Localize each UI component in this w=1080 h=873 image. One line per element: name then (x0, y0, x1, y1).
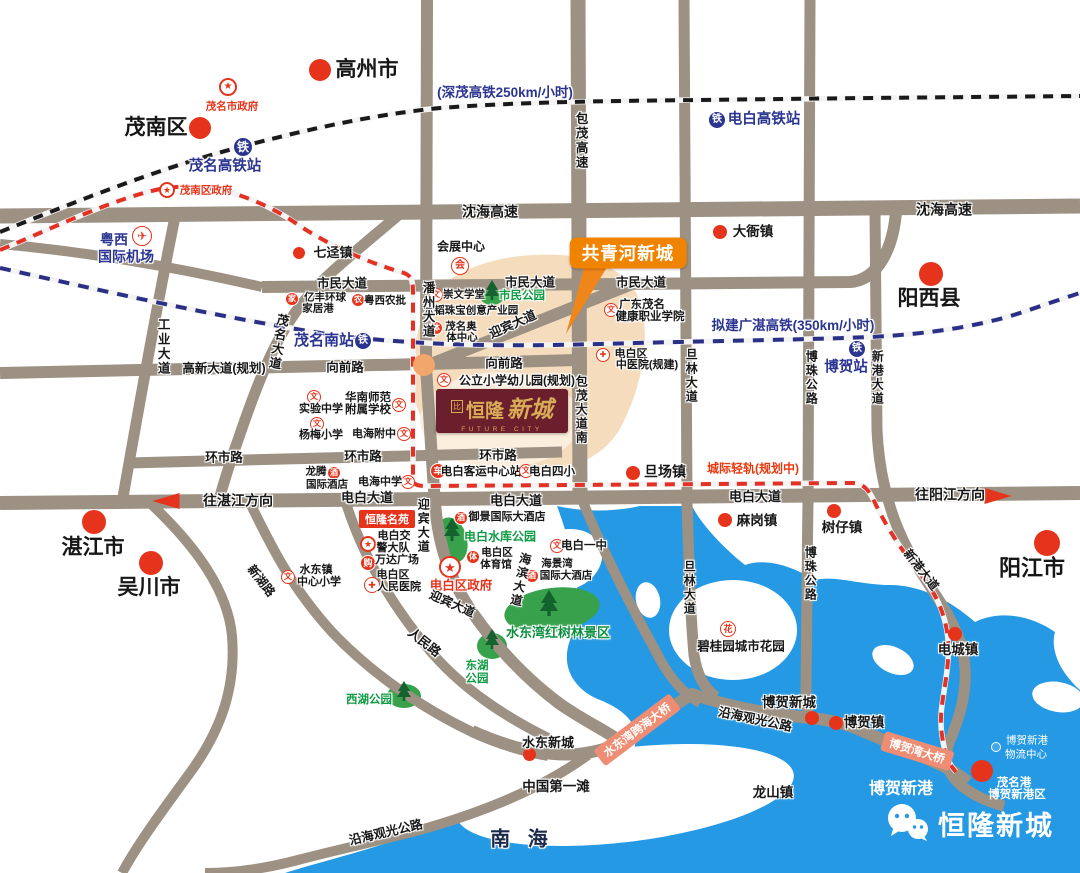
road-xinhu-rd-label: 新湖路 (245, 563, 277, 599)
city-wuchuan-label: 吴川市 (118, 577, 181, 599)
arrow-to-yangjiang-arrow (985, 488, 1012, 504)
town-longshan-label: 龙山镇 (753, 786, 794, 800)
road-dianbai-ave-1-label: 电白大道 (341, 491, 393, 505)
town-bohe-newtown-label: 博贺新城 (762, 696, 816, 710)
road-shimin-ave-2-label: 市民大道 (505, 276, 555, 289)
poi-tcm-hospital-line1: 中医院(规建) (616, 360, 678, 372)
park-mangrove-label: 水东湾红树林景区 (506, 626, 610, 640)
poi-biguiyuan-label: 碧桂园城市花园 (697, 640, 785, 653)
poi-dianbai-hsr-label: 电白高铁站 (728, 112, 801, 127)
road-baomao-ave-s-label: 包茂大道南 (575, 375, 588, 445)
poi-dianhai-fuzhong-label: 电海附中 (352, 429, 396, 441)
road-xingang-ave-n-label: 新港大道 (871, 350, 884, 406)
poi-wanda-plaza-icon: 购 (360, 555, 376, 571)
poi-biguiyuan-icon: 花 (720, 621, 736, 637)
arrow-to-yangjiang-label: 往阳江方向 (915, 488, 985, 503)
poi-yifeng-home-line1: 家居港 (302, 303, 334, 314)
road-dianbai-ave-2-label: 电白大道 (490, 494, 542, 508)
poi-bohe-station-icon: 铁 (848, 340, 866, 358)
road-panzhou-ave-label: 潘州大道 (420, 281, 433, 339)
poi-airport-line0: 粤西 (100, 233, 128, 248)
poi-health-college-line0: 广东茂名 (619, 299, 665, 311)
road-dianbai-ave-3-label: 电白大道 (729, 490, 781, 504)
poi-airport-line1: 国际机场 (98, 250, 154, 265)
town-qijing-dot (293, 247, 305, 259)
poi-maoming-hsr-label: 茂名高铁站 (189, 159, 262, 174)
rail-shenmao-label-label: (深茂高铁250km/小时) (437, 86, 573, 100)
poi-aoti-center-line1: 体中心 (446, 332, 478, 343)
road-xiangqian-rd-e-label: 向前路 (485, 357, 523, 370)
water-maoming-port-dot (971, 760, 993, 782)
road-shimin-ave-1-label: 市民大道 (317, 277, 367, 290)
poi-hengleng-mingyuan: 恒隆名苑 (359, 510, 415, 528)
city-zhanjiang-dot (82, 510, 106, 534)
town-bohe-newtown-dot (805, 711, 819, 725)
poi-shiyan-school-label: 实验中学 (299, 404, 343, 416)
poi-longteng-hotel-line1: 国际酒店 (306, 479, 348, 490)
label-nanhai-label: 南 海 (490, 830, 554, 851)
town-danchang-label: 旦场镇 (644, 465, 686, 480)
road-bozhu-hwy-s-label: 博珠公路 (804, 546, 817, 602)
poi-shuidong-school-line0: 水东镇 (300, 565, 333, 577)
water-maoming-port-line0: 茂名港 (997, 777, 1032, 789)
town-danchang-dot (626, 466, 640, 480)
road-maoming-ave-label: 茂名大道 (266, 312, 289, 371)
town-diancheng-label: 电城镇 (938, 643, 979, 657)
road-gaoxin-ave-label: 高新大道(规划) (182, 362, 265, 375)
town-bohe-dot (829, 716, 843, 730)
poi-dianhai-fuzhong-icon: 文 (397, 427, 411, 441)
park-reservoir-label: 电白水库公园 (464, 531, 536, 544)
town-shuidong-newtown-label: 水东新城 (522, 736, 574, 750)
town-qijing-label: 七迳镇 (313, 246, 352, 260)
poi-maoming-hsr-icon: 铁 (233, 137, 253, 157)
poi-chongwen-school-label: 崇文学堂 (443, 289, 485, 300)
poi-bus-station-label: 电白客运中心站 (441, 466, 522, 478)
town-shuzai-dot (827, 504, 841, 518)
poi-yuexi-market-label: 粤西农批 (364, 295, 406, 306)
map-annotations: 高州市茂南区阳西县湛江市吴川市阳江市七迳镇大衙镇旦场镇麻岗镇树仔镇电城镇博贺新城… (0, 0, 1080, 873)
bridge-shuidongwan: 水东湾跨海大桥 (593, 694, 681, 767)
poi-shuidong-school-line1: 中心小学 (297, 577, 341, 589)
logo-english-name: FUTURE CITY (461, 426, 542, 433)
road-yingbin-ave-s-label: 迎宾大道 (428, 588, 477, 619)
poi-dianbai-gov-icon: ★ (439, 556, 461, 578)
road-shimin-ave-3-label: 市民大道 (616, 276, 666, 289)
park-donghu-line0: 东湖 (466, 660, 489, 672)
park-donghu-line1: 公园 (466, 673, 489, 685)
road-shenhai-expwy-e-label: 沈海高速 (916, 203, 972, 218)
rail-guangzhan-label-label: 拟建广湛高铁(350km/小时) (712, 319, 875, 333)
water-bohe-newport-label: 博贺新港 (869, 782, 933, 799)
road-baomao-expwy-label: 包茂高速 (573, 112, 586, 170)
arrow-to-zhanjiang-arrow (153, 493, 180, 509)
poi-public-kindergarten-label: 公立小学幼儿园(规划) (459, 375, 575, 388)
poi-traffic-police-icon: ★ (360, 536, 376, 552)
city-wuchuan-dot (139, 551, 163, 575)
poi-dianbai-1st-school-label: 电白一中 (561, 540, 607, 552)
poi-shiyan-school-icon: 文 (307, 390, 321, 404)
poi-huanan-school-line0: 华南师范 (345, 392, 391, 404)
town-magang-dot (718, 513, 732, 527)
road-danlin-ave-n-label: 旦林大道 (685, 348, 698, 404)
road-xingang-ave-s-label: 新港大道 (901, 547, 940, 593)
poi-huanan-school-icon: 文 (392, 398, 406, 412)
arrow-to-zhanjiang-label: 往湛江方向 (203, 494, 273, 509)
poi-yujing-hotel-label: 御景国际大酒店 (469, 512, 546, 524)
poi-shuidong-school-icon: 文 (281, 570, 295, 584)
poi-gym-icon: 体 (466, 550, 480, 564)
wechat-account-name: 恒隆新城 (938, 804, 1054, 843)
poi-tcm-hospital-icon: ✚ (596, 348, 610, 362)
poi-people-hospital-line1: 人民医院 (377, 582, 421, 594)
wechat-icon (884, 803, 930, 843)
town-daya-label: 大衙镇 (733, 225, 774, 239)
bridge-bohewan: 博贺湾大桥 (880, 731, 954, 771)
town-daya-dot (713, 225, 727, 239)
city-maonan-label: 茂南区 (125, 117, 188, 139)
water-logistics-center-line1: 物流中心 (1005, 749, 1047, 760)
road-huanshi-rd-1-label: 环市路 (205, 451, 243, 464)
poi-maonan-gov-icon: ★ (159, 182, 175, 198)
water-logistics-center-line0: 博贺新港 (1006, 735, 1048, 746)
road-huanshi-rd-3-label: 环市路 (479, 449, 517, 462)
town-shuzai-label: 树仔镇 (822, 521, 863, 535)
road-danlin-ave-s-label: 旦林大道 (683, 560, 696, 616)
city-zhanjiang-label: 湛江市 (62, 537, 125, 559)
poi-dianhai-school-label: 电海中学 (358, 477, 402, 489)
poi-public-kindergarten-icon: 文 (437, 373, 451, 387)
project-logo-row: 比 恒隆 新城 (451, 390, 553, 424)
poi-maoming-gov-icon: ★ (219, 78, 237, 96)
city-maonan-dot (189, 117, 211, 139)
callout-gongqinghe-newtown: 共青河新城 (570, 238, 687, 269)
poi-dianbai-4th-school-label: 电白四小 (529, 466, 575, 478)
poi-longteng-hotel-line0: 龙腾 (306, 466, 327, 477)
water-maoming-port-line1: 博贺新港区 (988, 789, 1046, 801)
city-yangjiang-label: 阳江市 (999, 556, 1065, 579)
town-magang-label: 麻岗镇 (737, 514, 778, 528)
poi-gym-line0: 电白区 (481, 547, 513, 558)
park-shimin-label: 市民公园 (499, 290, 545, 302)
label-first-beach-label: 中国第一滩 (522, 780, 590, 794)
poi-traffic-police-line1: 警大队 (377, 543, 410, 555)
town-bohe-label: 博贺镇 (844, 716, 885, 730)
poi-bohe-station-label: 博贺站 (824, 360, 868, 375)
road-gongye-ave-label: 工业大道 (155, 318, 168, 376)
poi-maoming-south-station-icon: 铁 (354, 332, 372, 350)
road-huanshi-rd-2-label: 环市路 (344, 450, 382, 463)
poi-maoming-gov-label: 茂名市政府 (206, 101, 259, 112)
logo-name-part1: 恒隆 (466, 396, 504, 423)
poi-exhibition-center-label: 会展中心 (437, 241, 485, 254)
logo-name-part2: 新城 (507, 390, 553, 424)
poi-people-hospital-line0: 电白区 (377, 570, 410, 582)
road-coastal-w-label: 沿海观光公路 (348, 818, 424, 848)
poi-huanan-school-line1: 附属学校 (345, 404, 391, 416)
poi-wanda-plaza-label: 万达广场 (375, 555, 419, 567)
logo-mark-icon: 比 (451, 400, 463, 413)
poi-haijingwan-hotel-line0: 海景湾 (541, 558, 573, 569)
city-yangxi-dot (919, 262, 943, 286)
city-yangxi-label: 阳西县 (898, 288, 961, 310)
water-logistics-center-icon (991, 742, 1001, 752)
poi-gym-line1: 体育馆 (480, 559, 512, 570)
road-shenhai-expwy-w-label: 沈海高速 (462, 205, 518, 220)
poi-yujing-hotel-icon: 酒 (454, 511, 468, 525)
park-xihu-label: 西湖公园 (346, 694, 392, 706)
city-yangjiang-dot (1034, 530, 1060, 556)
poi-dianhai-school-icon: 文 (401, 475, 415, 489)
road-yingbin-ave-v-label: 迎宾大道 (417, 498, 430, 554)
poi-health-college-line1: 健康职业学院 (616, 311, 685, 323)
rail-lightrail-label-label: 城际轻轨(规划中) (707, 463, 799, 476)
road-bozhu-hwy-n-label: 博珠公路 (805, 350, 818, 406)
city-gaozhou-label: 高州市 (336, 59, 399, 81)
map-canvas: 高州市茂南区阳西县湛江市吴川市阳江市七迳镇大衙镇旦场镇麻岗镇树仔镇电城镇博贺新城… (0, 0, 1080, 873)
road-xiangqian-rd-w-label: 向前路 (326, 361, 364, 374)
poi-traffic-police-line0: 电白交 (378, 531, 411, 543)
poi-dianbai-hsr-icon: 铁 (708, 111, 726, 129)
project-logo: 比 恒隆 新城 FUTURE CITY (436, 389, 568, 433)
city-gaozhou-dot (309, 59, 331, 81)
poi-maoming-south-station-label: 茂名南站 (294, 333, 354, 349)
poi-yuexi-market-icon: 农 (351, 293, 365, 307)
poi-yifeng-home-icon: 家 (285, 292, 299, 306)
town-diancheng-dot (948, 627, 962, 641)
poi-jewelry-park-label: 六韬珠宝创意产业园 (424, 305, 519, 316)
poi-exhibition-center-icon: 会 (451, 257, 469, 275)
poi-haijingwan-hotel-line1: 国际大酒店 (540, 570, 593, 581)
poi-yangmei-school-label: 杨梅小学 (299, 430, 343, 442)
wechat-footer: 恒隆新城 (884, 803, 1054, 843)
poi-airport-icon: ✈ (132, 226, 152, 246)
road-renmin-rd-label: 人民路 (405, 626, 443, 659)
poi-maonan-gov-label: 茂南区政府 (180, 185, 233, 196)
